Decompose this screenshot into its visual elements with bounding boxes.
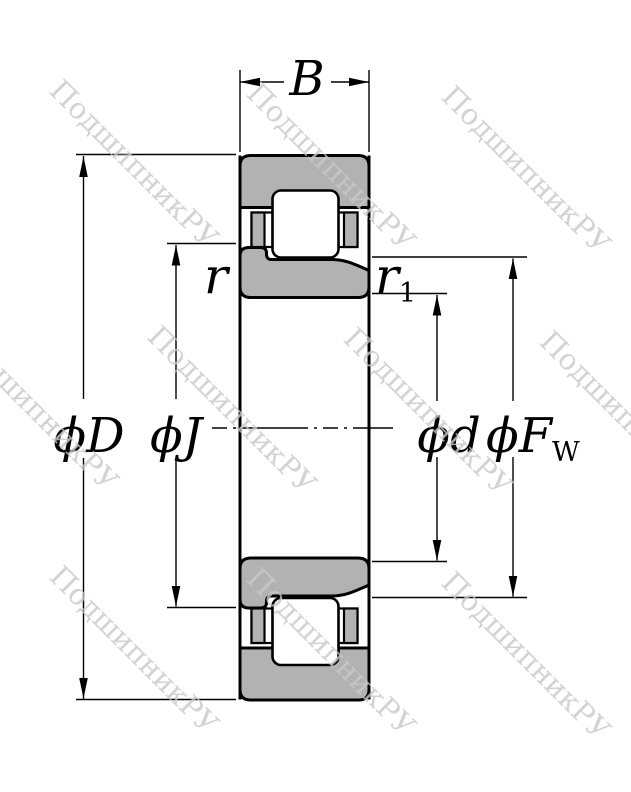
watermark-text: ПодшипникРУ — [0, 316, 125, 498]
label-r: r — [204, 247, 231, 305]
arrowhead-down — [509, 576, 518, 597]
cage-right-bar — [344, 213, 358, 248]
cage-left — [252, 213, 273, 248]
arrowhead-up — [172, 245, 181, 266]
watermark-text: ПодшипникРУ — [435, 565, 617, 747]
watermark-text: ПодшипникРУ — [43, 73, 225, 255]
label-r1-subscript: 1 — [399, 278, 416, 309]
arrowhead-up — [509, 259, 518, 280]
watermark-text: ПодшипникРУ — [43, 559, 225, 741]
bearing-technical-drawing: B ϕD ϕJ ϕd ϕFW — [0, 0, 631, 792]
label-B: B — [288, 51, 324, 107]
arrowhead-right — [349, 78, 369, 87]
roller — [273, 191, 339, 258]
watermark-text: ПодшипникРУ — [435, 79, 617, 261]
label-phiFw-subscript: W — [552, 437, 580, 468]
label-phiJ: ϕJ — [150, 408, 205, 464]
arrowhead-down — [79, 678, 88, 699]
arrowhead-up — [79, 157, 88, 178]
cage-left-bar — [252, 213, 265, 248]
arrowhead-down — [172, 586, 181, 607]
bearing-drawing-page: B ϕD ϕJ ϕd ϕFW — [0, 0, 631, 792]
arrowhead-down — [433, 540, 442, 561]
arrowhead-up — [433, 295, 442, 316]
